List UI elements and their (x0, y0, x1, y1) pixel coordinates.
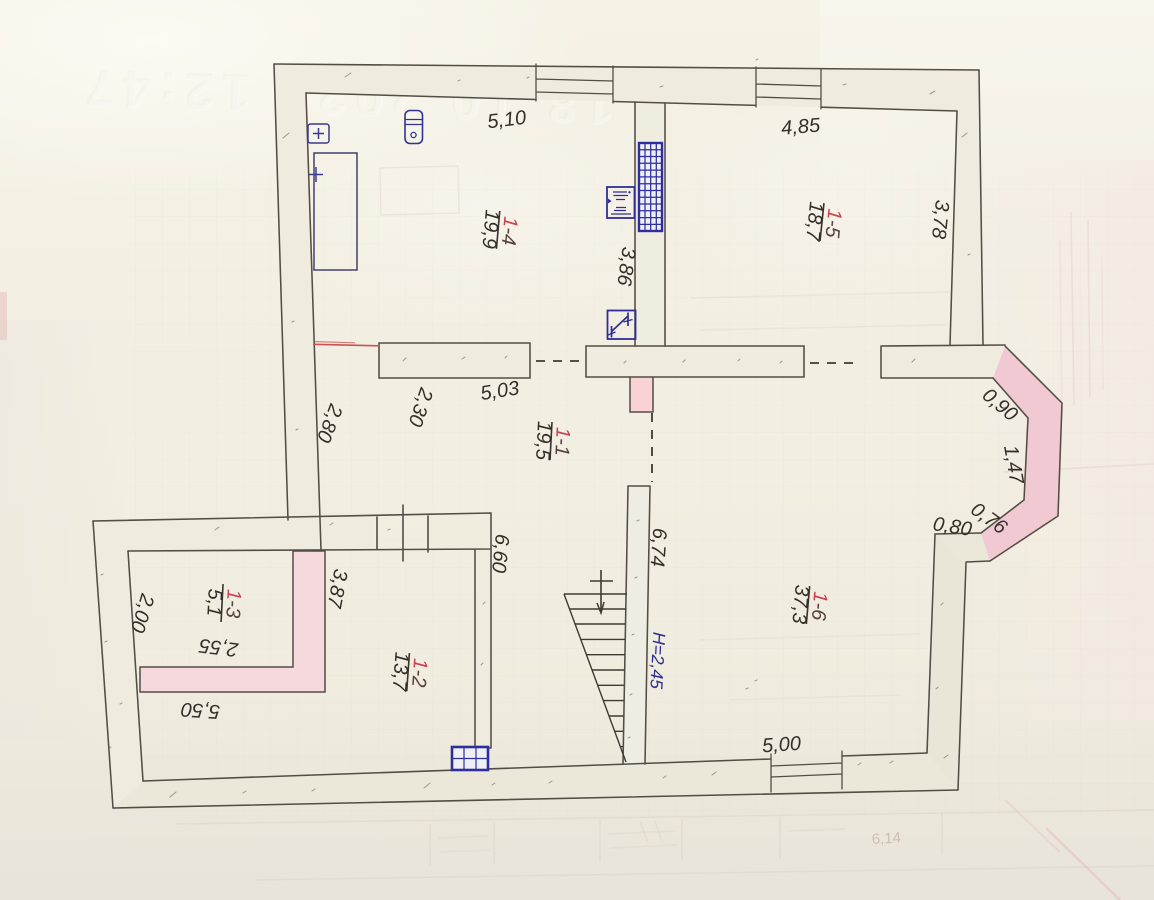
svg-text:19,9: 19,9 (477, 209, 502, 250)
svg-text:5,1: 5,1 (202, 588, 225, 617)
svg-text:5,10: 5,10 (486, 107, 527, 134)
svg-text:6,60: 6,60 (487, 533, 513, 574)
svg-text:18,7: 18,7 (801, 201, 827, 243)
svg-text:6,74: 6,74 (646, 527, 671, 567)
svg-text:5,00: 5,00 (761, 733, 801, 758)
svg-text:5,50: 5,50 (180, 698, 220, 723)
svg-text:19,5: 19,5 (531, 421, 555, 462)
svg-text:4,85: 4,85 (780, 114, 822, 139)
svg-text:6,14: 6,14 (871, 829, 901, 848)
svg-text:H=2,45: H=2,45 (646, 632, 669, 690)
svg-text:13,7: 13,7 (388, 651, 413, 692)
svg-text:3,78: 3,78 (927, 199, 953, 240)
svg-text:37,3: 37,3 (787, 584, 812, 625)
